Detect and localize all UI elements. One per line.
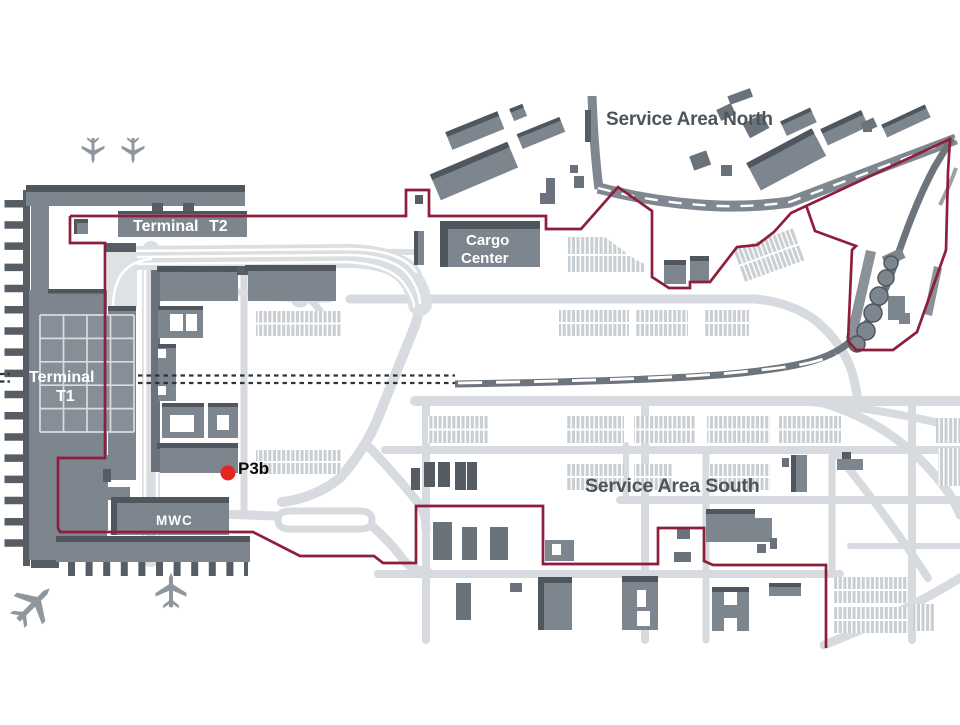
svg-text:Service Area South: Service Area South xyxy=(585,475,760,497)
svg-text:Center: Center xyxy=(461,250,509,267)
svg-text:T1: T1 xyxy=(56,388,75,405)
svg-text:Terminal: Terminal xyxy=(133,218,199,235)
svg-text:Cargo: Cargo xyxy=(466,232,509,249)
svg-text:T2: T2 xyxy=(209,218,228,235)
svg-text:MWC: MWC xyxy=(156,513,193,528)
svg-text:Terminal: Terminal xyxy=(29,369,95,386)
svg-text:Service Area North: Service Area North xyxy=(606,109,773,130)
svg-text:P3b: P3b xyxy=(238,459,269,478)
